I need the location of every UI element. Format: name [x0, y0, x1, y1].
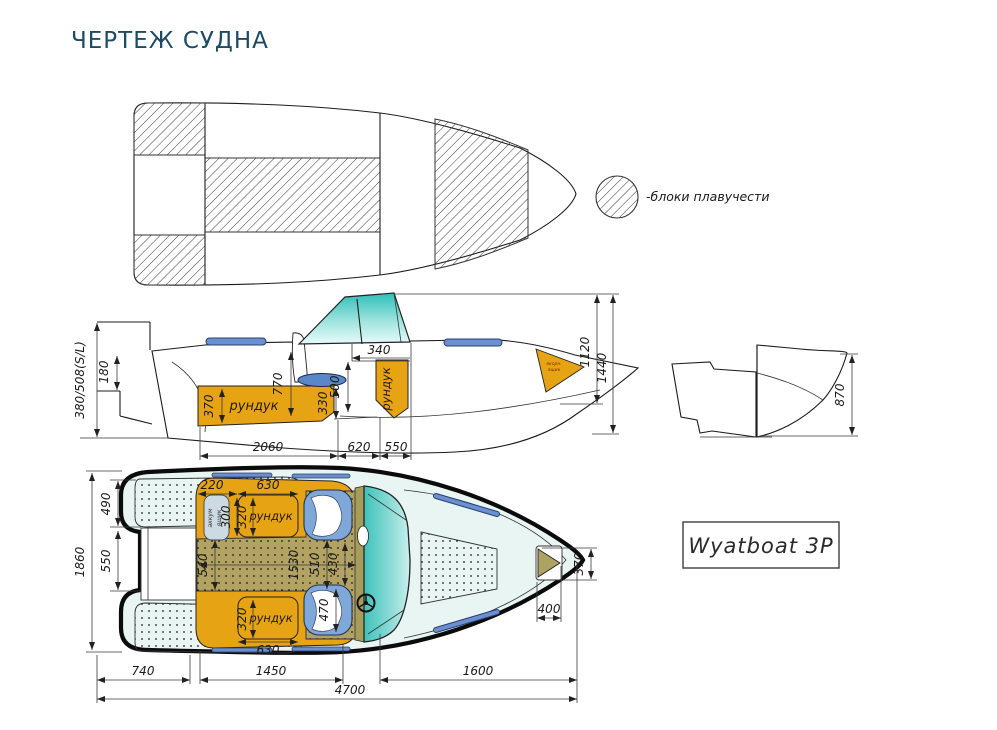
dim-1600-label: 1600: [463, 664, 494, 678]
dim-1450: 1450: [200, 664, 343, 680]
dim-470-label: 470: [317, 598, 331, 621]
dim-620: 620: [338, 440, 380, 456]
dim-510-label: 510: [308, 552, 322, 575]
buoyancy-block-middle: [205, 158, 380, 232]
dim-180-label: 180: [97, 360, 111, 383]
dim-370-side-label: 370: [202, 394, 216, 417]
stern-locker: рундук: [198, 386, 334, 426]
dim-1440-label: 1440: [595, 352, 609, 383]
dim-370-plan: 370: [572, 549, 591, 579]
boat-drawing-page: ЧЕРТЕЖ СУДНА: [0, 0, 997, 730]
dim-490: 490: [99, 481, 118, 526]
buoyancy-block-stern-top: [134, 103, 205, 155]
dim-870-label: 870: [833, 383, 847, 406]
dim-500-label: 500: [328, 375, 342, 398]
bow-locker: рундук: [376, 360, 408, 418]
dim-630-bottom-label: 630: [257, 643, 280, 657]
dim-220-label: 220: [201, 478, 224, 492]
model-badge: Wyatboat 3P: [683, 522, 839, 568]
dim-4700: 4700: [97, 683, 577, 699]
motor-well: [141, 528, 197, 600]
dim-1530-label: 1530: [287, 549, 301, 580]
legend-label: -блоки плавучести: [646, 189, 769, 204]
dim-320-bottom-label: 320: [235, 607, 249, 630]
dim-1120: 1120: [578, 295, 597, 403]
dim-180: 180: [97, 356, 117, 390]
dim-320-top-label: 320: [235, 505, 249, 528]
dim-630-top-label: 630: [257, 478, 280, 492]
dim-550-side-label: 550: [385, 440, 408, 454]
dim-400: 400: [537, 602, 561, 618]
dim-740-label: 740: [132, 664, 155, 678]
gunwale-rail-bottom-right: [292, 647, 350, 651]
transom-half-breadth: [672, 362, 756, 437]
stern-handrail-side: [206, 338, 266, 345]
dim-370-plan-label: 370: [572, 552, 586, 575]
bow-locker-label: рундук: [379, 367, 393, 411]
plan-locker-top-label: рундук: [248, 509, 292, 523]
dim-1440: 1440: [595, 295, 613, 433]
anchor-box-label-2: ящик: [548, 368, 561, 373]
anchor-box-plan: [536, 546, 562, 580]
dim-2060-label: 2060: [253, 440, 284, 454]
gunwale-rail-top-right: [292, 474, 350, 478]
dim-620-label: 620: [348, 440, 371, 454]
gunwale-rail-top-left: [212, 473, 272, 477]
dim-1860-label: 1860: [73, 546, 87, 577]
dim-490-label: 490: [99, 492, 113, 515]
hull-side-view: рундук рундук: [73, 293, 638, 460]
dim-transom-height-label: 380/508(S/L): [73, 341, 87, 419]
boat-drawing-canvas: -блоки плавучести рундук рундук: [0, 0, 997, 730]
hull-bottom-view: [134, 103, 576, 285]
battery-box-label-1: аккум: [207, 508, 214, 527]
dim-550-side: 550: [380, 440, 411, 456]
transom-section-view: 870: [672, 345, 858, 437]
dim-400-label: 400: [538, 602, 561, 616]
anchor-box-label-1: якорн.: [546, 362, 561, 367]
deck-plan-view: рундук рундук аккум ящик: [73, 467, 597, 703]
seat-top: [304, 490, 352, 540]
dim-300-label: 300: [219, 505, 233, 528]
dim-340: 340: [352, 343, 410, 358]
model-badge-label: Wyatboat 3P: [688, 534, 833, 558]
dim-740: 740: [97, 664, 190, 680]
buoyancy-block-stern-bottom: [134, 235, 205, 285]
dash-gauge: [358, 526, 369, 546]
legend: -блоки плавучести: [596, 176, 769, 218]
dashboard-strip: [355, 486, 364, 642]
dim-340-label: 340: [368, 343, 391, 357]
dim-transom-height: 380/508(S/L): [73, 323, 97, 437]
dim-1600: 1600: [380, 664, 577, 680]
dim-430-label: 430: [326, 552, 340, 575]
windshield-side: [299, 293, 410, 344]
bow-handrail-side: [444, 339, 502, 346]
dim-550-plan-label: 550: [99, 549, 113, 572]
buoyancy-block-bow: [435, 119, 528, 269]
buoyancy-legend-swatch: [596, 176, 638, 218]
dim-1120-label: 1120: [578, 336, 592, 367]
dim-550-plan: 550: [99, 531, 118, 590]
plan-locker-bottom-label: рундук: [248, 611, 292, 625]
dim-1860: 1860: [73, 473, 92, 650]
dim-770-label: 770: [271, 372, 285, 395]
stern-locker-label: рундук: [229, 399, 279, 414]
dim-1450-label: 1450: [256, 664, 287, 678]
dim-4700-label: 4700: [335, 683, 366, 697]
